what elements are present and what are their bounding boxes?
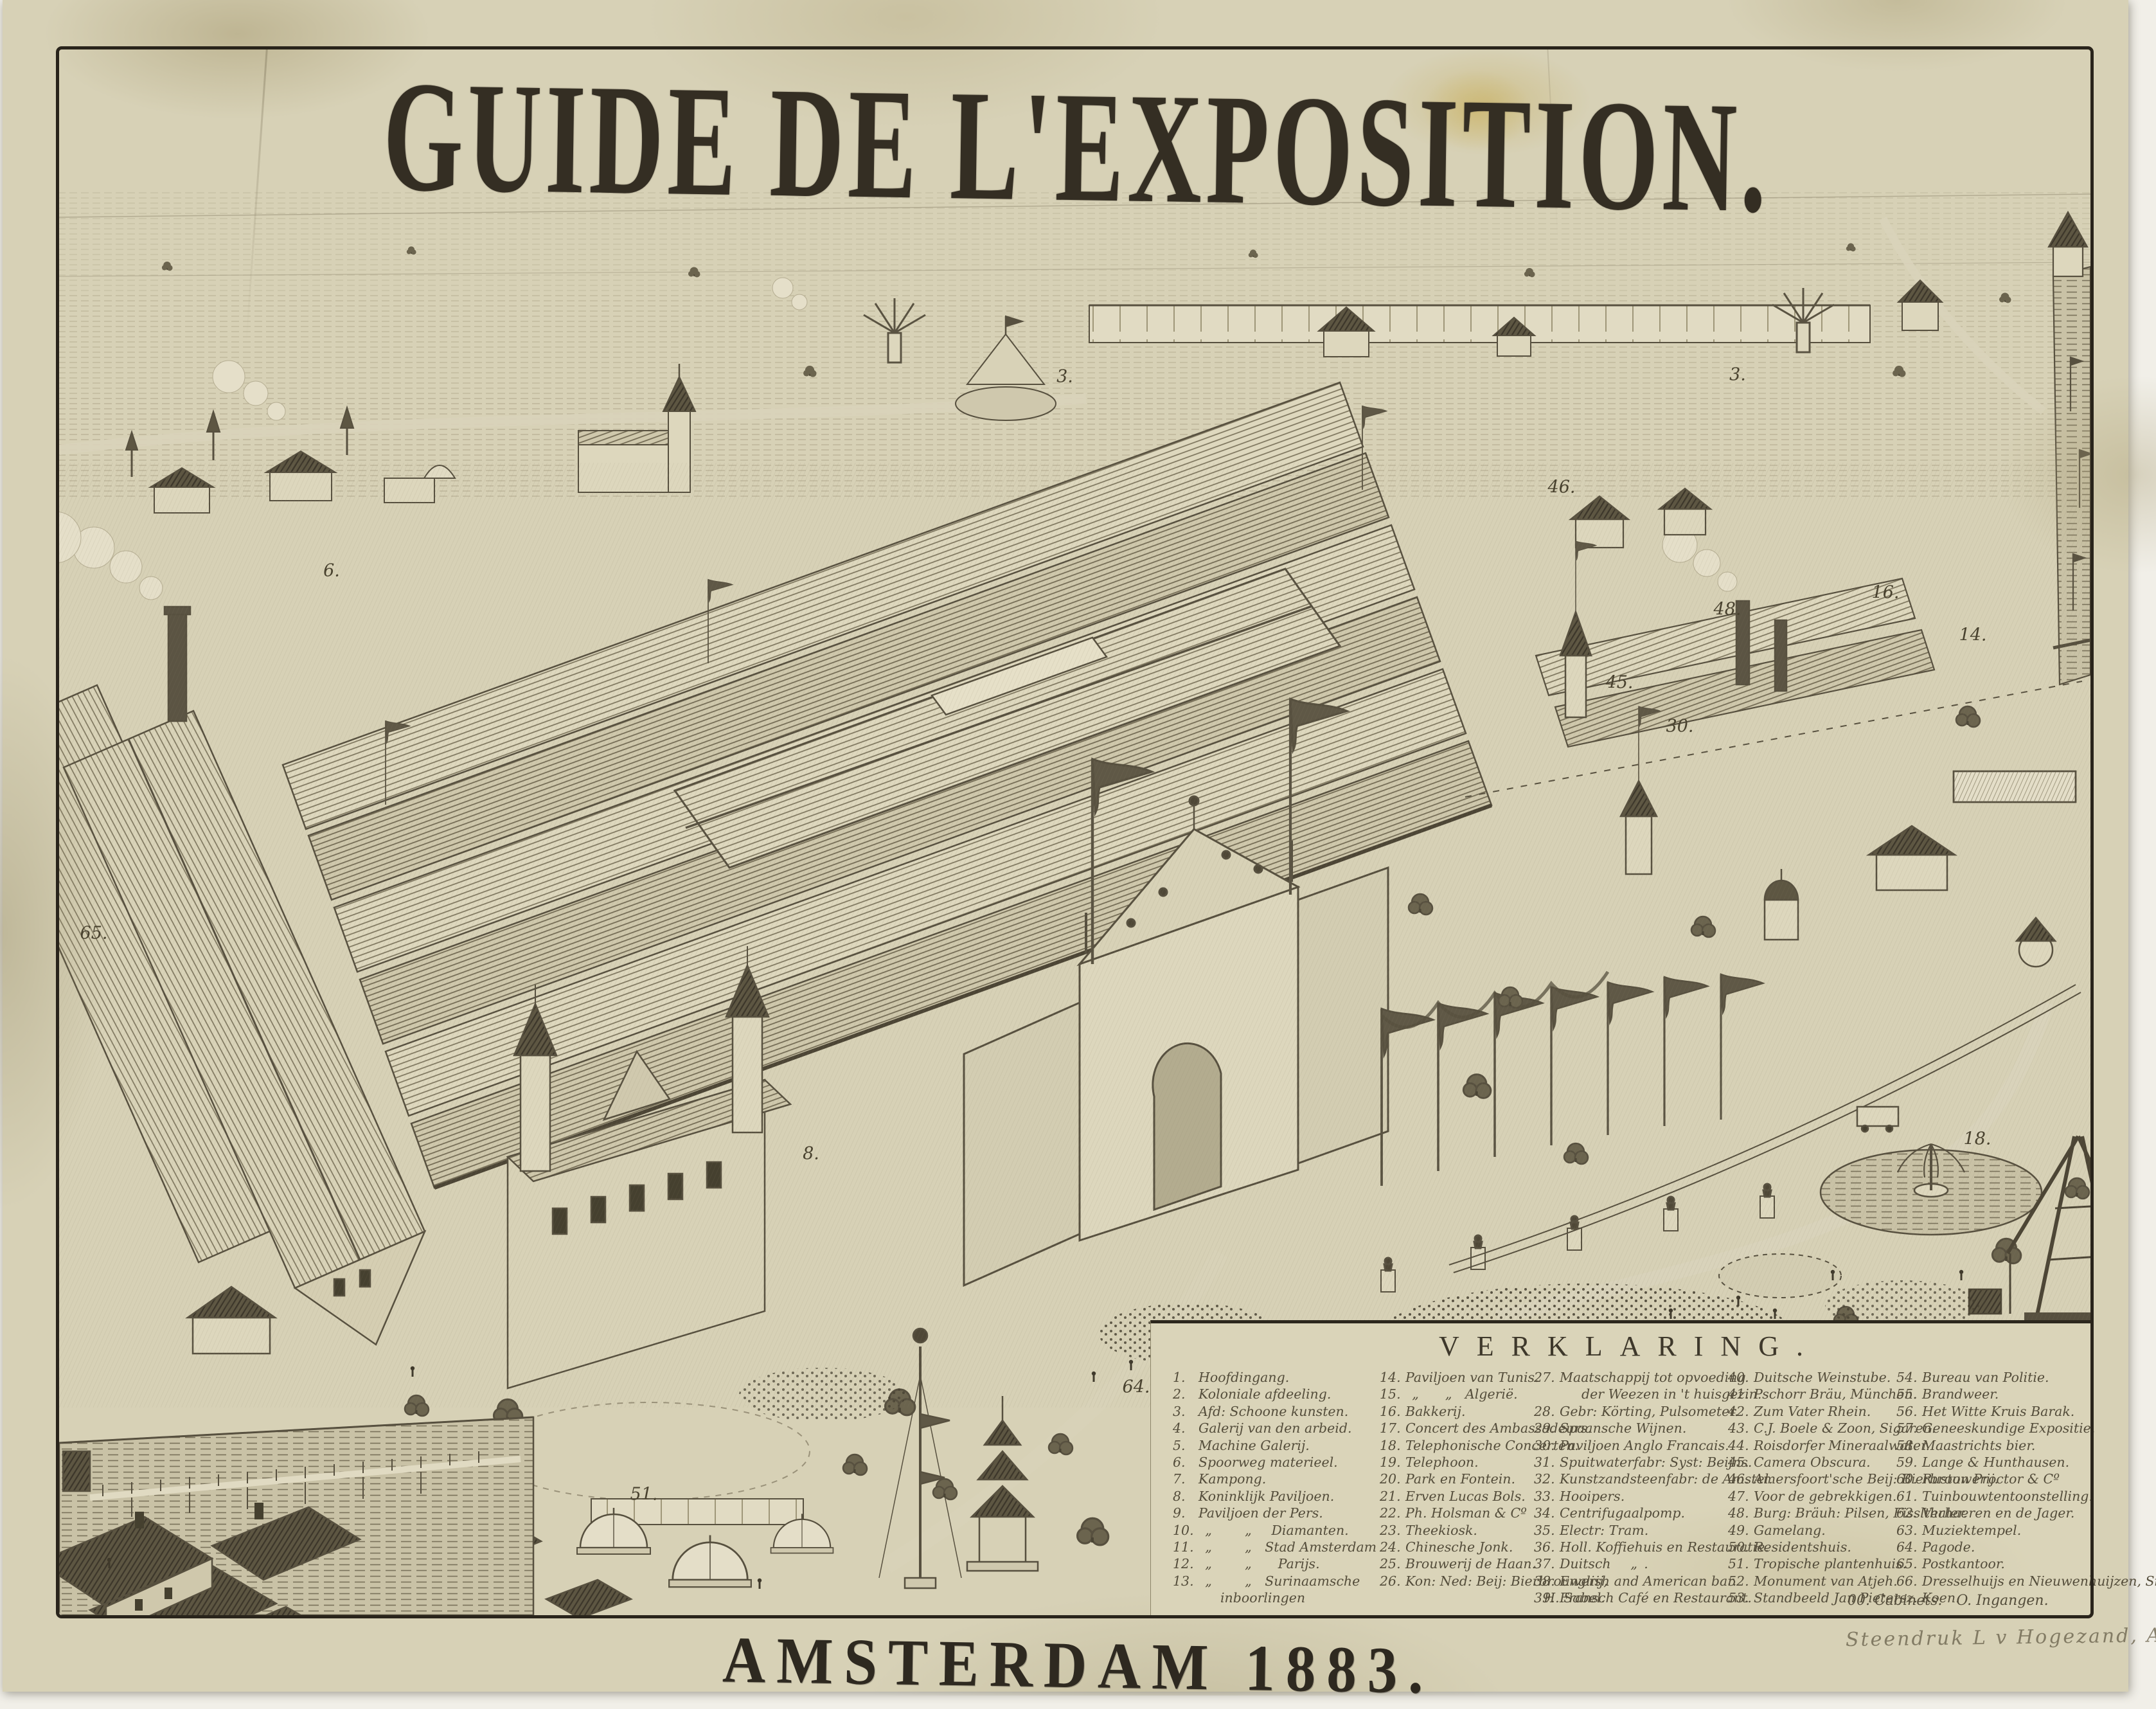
legend-entry: 30.Paviljoen Anglo Francais. bbox=[1534, 1437, 1728, 1454]
legend-entry: 58.Maastrichts bier. bbox=[1896, 1437, 2083, 1454]
legend-entry: 14.Paviljoen van Tunis. bbox=[1380, 1369, 1534, 1386]
legend-entry: 32.Kunstzandsteenfabr: de Amstel. bbox=[1534, 1471, 1728, 1487]
legend-column: 54.Bureau van Politie.55.Brandweer.56.He… bbox=[1896, 1369, 2083, 1607]
legend-entry: 9.Paviljoen der Pers. bbox=[1173, 1505, 1380, 1521]
legend-entry: 20.Park en Fontein. bbox=[1380, 1471, 1534, 1487]
legend-entry: 41.Pschorr Bräu, München. bbox=[1728, 1386, 1896, 1402]
legend-entry: 63.Muziektempel. bbox=[1896, 1522, 2083, 1539]
legend-entry: 11. „ „ Stad Amsterdam bbox=[1173, 1539, 1380, 1555]
legend-entry: 34.Centrifugaalpomp. bbox=[1534, 1505, 1728, 1521]
legend-entry: 50.Residentshuis. bbox=[1728, 1539, 1896, 1555]
legend-entry: 47.Voor de gebrekkigen. bbox=[1728, 1488, 1896, 1505]
legend-entry: 43.C.J. Boele & Zoon, Sigaren. bbox=[1728, 1420, 1896, 1436]
legend-entry: 23.Theekiosk. bbox=[1380, 1522, 1534, 1539]
legend-entry: 7.Kampong. bbox=[1173, 1471, 1380, 1487]
legend-entry: 4.Galerij van den arbeid. bbox=[1173, 1420, 1380, 1436]
legend-entry: 44.Roisdorfer Mineraalwater. bbox=[1728, 1437, 1896, 1454]
legend-entry: 33.Hooipers. bbox=[1534, 1488, 1728, 1505]
legend-entry: 37.Duitsch „ . bbox=[1534, 1555, 1728, 1572]
legend-entry: 2.Koloniale afdeeling. bbox=[1173, 1386, 1380, 1402]
legend-entry: 48.Burg: Bräuh: Pilsen, Fisslthaler. bbox=[1728, 1505, 1896, 1521]
legend-entry: 8.Koninklijk Paviljoen. bbox=[1173, 1488, 1380, 1505]
legend-header: VERKLARING. bbox=[1151, 1330, 2091, 1363]
legend-entry: 6.Spoorweg materieel. bbox=[1173, 1454, 1380, 1471]
legend-entry: 18.Telephonische Concerten. bbox=[1380, 1437, 1534, 1454]
legend-entry: 5.Machine Galerij. bbox=[1173, 1437, 1380, 1454]
legend-entry: 55.Brandweer. bbox=[1896, 1386, 2083, 1402]
legend-entry: 17.Concert des Ambassadeurs. bbox=[1380, 1420, 1534, 1436]
bottom-caption: AMSTERDAM 1883. bbox=[722, 1622, 1434, 1709]
legend-entry: 1.Hoofdingang. bbox=[1173, 1369, 1380, 1386]
legend-entry: 66.Dresselhuijs en Nieuwenhuijzen, Sigar… bbox=[1896, 1573, 2083, 1589]
legend-entry: 35.Electr: Tram. bbox=[1534, 1522, 1728, 1539]
legend-entry: 49.Gamelang. bbox=[1728, 1522, 1896, 1539]
legend-entry: 15. „ „ Algerië. bbox=[1380, 1386, 1534, 1402]
legend-entry: 10. „ „ Diamanten. bbox=[1173, 1522, 1380, 1539]
legend-entry: 46.Amersfoort'sche Beij: Bierbrouwerij. bbox=[1728, 1471, 1896, 1487]
legend-entry: 31.Spuitwaterfabr: Syst: Beijns. bbox=[1534, 1454, 1728, 1471]
legend-entry: 24.Chinesche Jonk. bbox=[1380, 1539, 1534, 1555]
legend-entry: 22.Ph. Holsman & Cº bbox=[1380, 1505, 1534, 1521]
legend-entry: 29.Spaansche Wijnen. bbox=[1534, 1420, 1728, 1436]
legend-entry: 60.Ruston Proctor & Cº bbox=[1896, 1471, 2083, 1487]
legend-entry: 25.Brouwerij de Haan. bbox=[1380, 1555, 1534, 1572]
legend-entry: 3.Afd: Schoone kunsten. bbox=[1173, 1403, 1380, 1420]
legend-entry: 38.English and American bar. bbox=[1534, 1573, 1728, 1589]
legend-entry: 12. „ „ Parijs. bbox=[1173, 1555, 1380, 1572]
legend-entry: 19.Telephoon. bbox=[1380, 1454, 1534, 1471]
legend-entry: 36.Holl. Koffiehuis en Restauratie. bbox=[1534, 1539, 1728, 1555]
legend-entry: 51.Tropische plantenhuis. bbox=[1728, 1555, 1896, 1572]
legend-column: 27.Maatschappij tot opvoedingder Weezen … bbox=[1534, 1369, 1728, 1607]
legend-column: 1.Hoofdingang.2.Koloniale afdeeling.3.Af… bbox=[1173, 1369, 1380, 1607]
legend-entry: 54.Bureau van Politie. bbox=[1896, 1369, 2083, 1386]
legend-entry: 61.Tuinbouwtentoonstelling. bbox=[1896, 1488, 2083, 1505]
legend-entry: 59.Lange & Hunthausen. bbox=[1896, 1454, 2083, 1471]
legend-entry: 16.Bakkerij. bbox=[1380, 1403, 1534, 1420]
legend-entry: 39.Fransch Café en Restaurant. bbox=[1534, 1589, 1728, 1606]
printer-credit: Steendruk L v Hogezand, Amst. bbox=[1846, 1624, 2156, 1651]
legend-entry: 26.Kon: Ned: Beij: Bierbrouwerij,H. Sabe… bbox=[1380, 1573, 1534, 1607]
legend-entry: 13. „ „ Surinaamscheinboorlingen bbox=[1173, 1573, 1380, 1607]
legend-note: 00. Cabinets. O. Ingangen. bbox=[1848, 1593, 2049, 1609]
legend-entry: 21.Erven Lucas Bols. bbox=[1380, 1488, 1534, 1505]
legend-entry: 65.Postkantoor. bbox=[1896, 1555, 2083, 1572]
litho-texture bbox=[59, 463, 2090, 1408]
legend-entry: 45.Camera Obscura. bbox=[1728, 1454, 1896, 1471]
legend-entry: 52.Monument van Atjeh. bbox=[1728, 1573, 1896, 1589]
legend-entry: 42.Zum Vater Rhein. bbox=[1728, 1403, 1896, 1420]
legend-entry: 57.Geneeskundige Expositie. bbox=[1896, 1420, 2083, 1436]
legend-column: 14.Paviljoen van Tunis.15. „ „ Algerië.1… bbox=[1380, 1369, 1534, 1607]
poster-title: GUIDE DE L'EXPOSITION. bbox=[382, 46, 1772, 249]
legend-column: 40.Duitsche Weinstube.41.Pschorr Bräu, M… bbox=[1728, 1369, 1896, 1607]
legend-entry: 56.Het Witte Kruis Barak. bbox=[1896, 1403, 2083, 1420]
legend-entry: 64.Pagode. bbox=[1896, 1539, 2083, 1555]
legend-entry: 40.Duitsche Weinstube. bbox=[1728, 1369, 1896, 1386]
legend-columns: 1.Hoofdingang.2.Koloniale afdeeling.3.Af… bbox=[1151, 1366, 2091, 1607]
canal-bridge-houses bbox=[39, 1417, 533, 1696]
legend-entry: 62.Verhaeren en de Jager. bbox=[1896, 1505, 2083, 1521]
legend-panel: VERKLARING. 1.Hoofdingang.2.Koloniale af… bbox=[1150, 1320, 2091, 1615]
legend-entry: 27.Maatschappij tot opvoedingder Weezen … bbox=[1534, 1369, 1728, 1403]
legend-entry: 28.Gebr: Körting, Pulsometer. bbox=[1534, 1403, 1728, 1420]
